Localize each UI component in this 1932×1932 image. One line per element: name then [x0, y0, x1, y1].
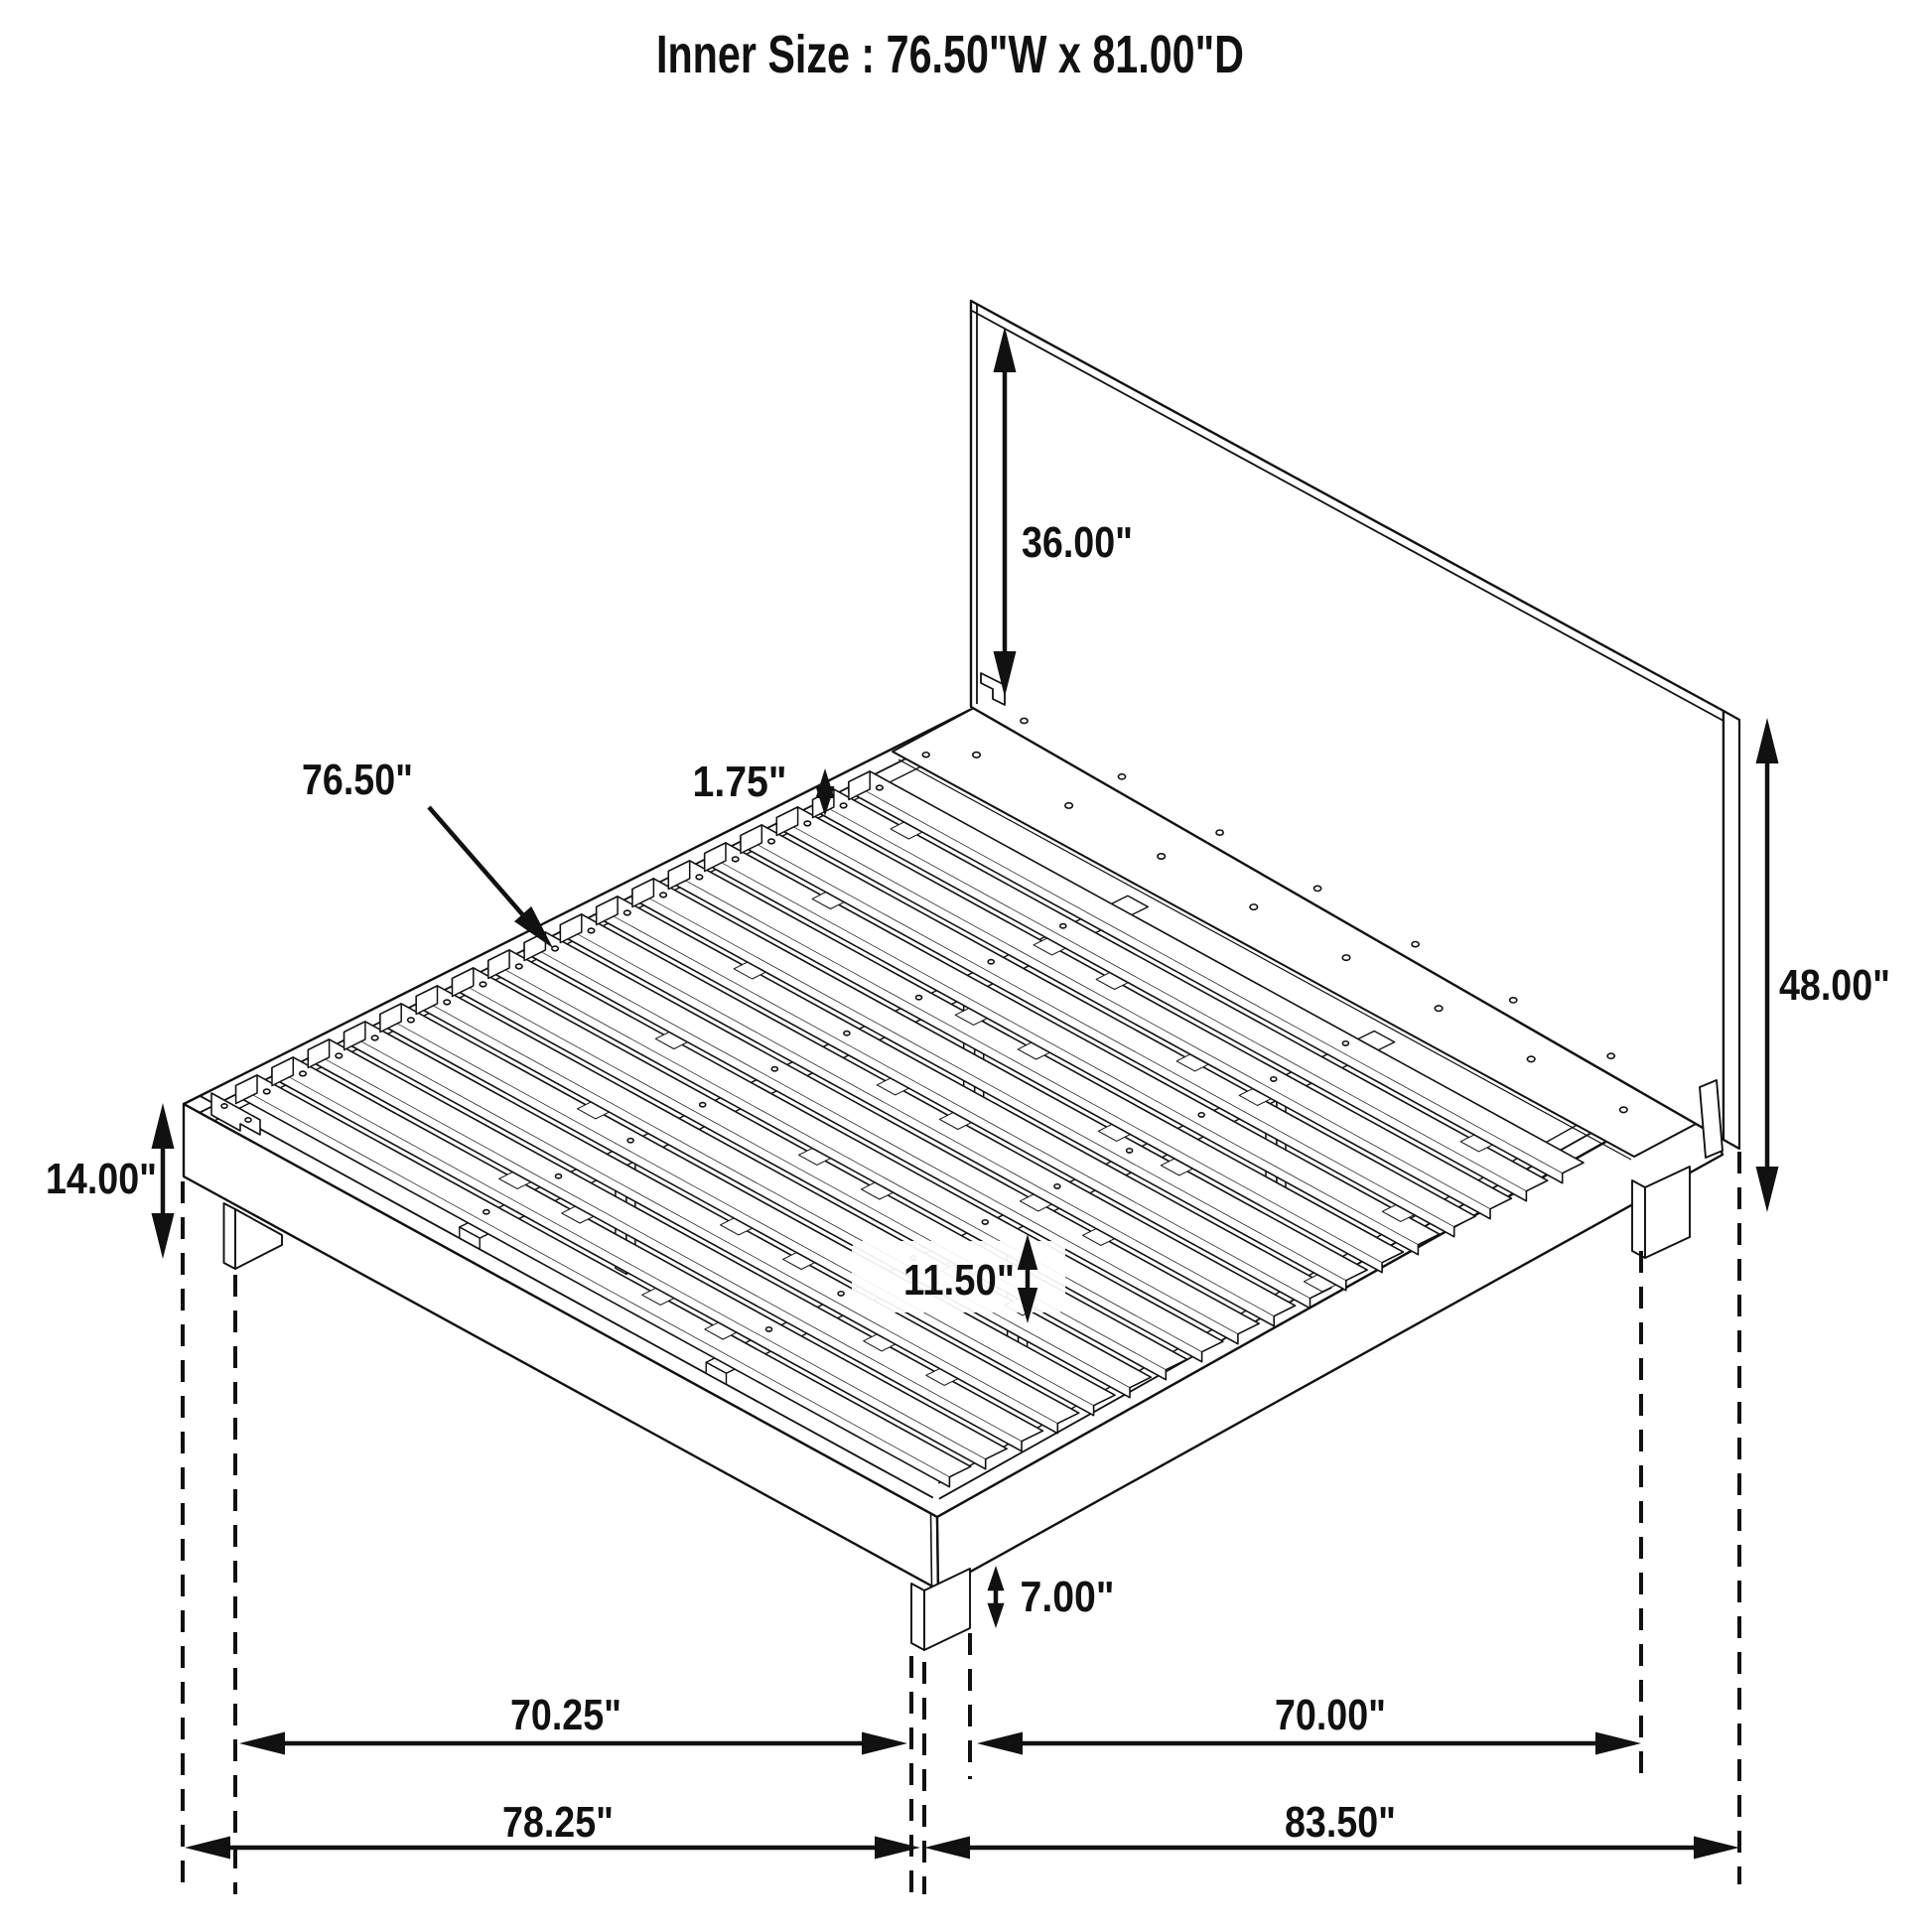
svg-text:7.00": 7.00" — [1021, 1573, 1115, 1621]
svg-text:70.00": 70.00" — [1275, 1691, 1386, 1739]
svg-text:14.00": 14.00" — [46, 1155, 157, 1203]
svg-text:36.00": 36.00" — [1022, 518, 1133, 567]
svg-text:48.00": 48.00" — [1779, 961, 1890, 1010]
svg-text:Inner Size : 76.50"W x 81.00"D: Inner Size : 76.50"W x 81.00"D — [656, 25, 1244, 84]
svg-text:70.25": 70.25" — [510, 1691, 621, 1739]
svg-text:78.25": 78.25" — [502, 1798, 614, 1847]
svg-text:76.50": 76.50" — [302, 756, 413, 804]
svg-text:1.75": 1.75" — [693, 758, 787, 806]
svg-text:83.50": 83.50" — [1285, 1798, 1396, 1847]
svg-text:11.50": 11.50" — [903, 1256, 1015, 1305]
